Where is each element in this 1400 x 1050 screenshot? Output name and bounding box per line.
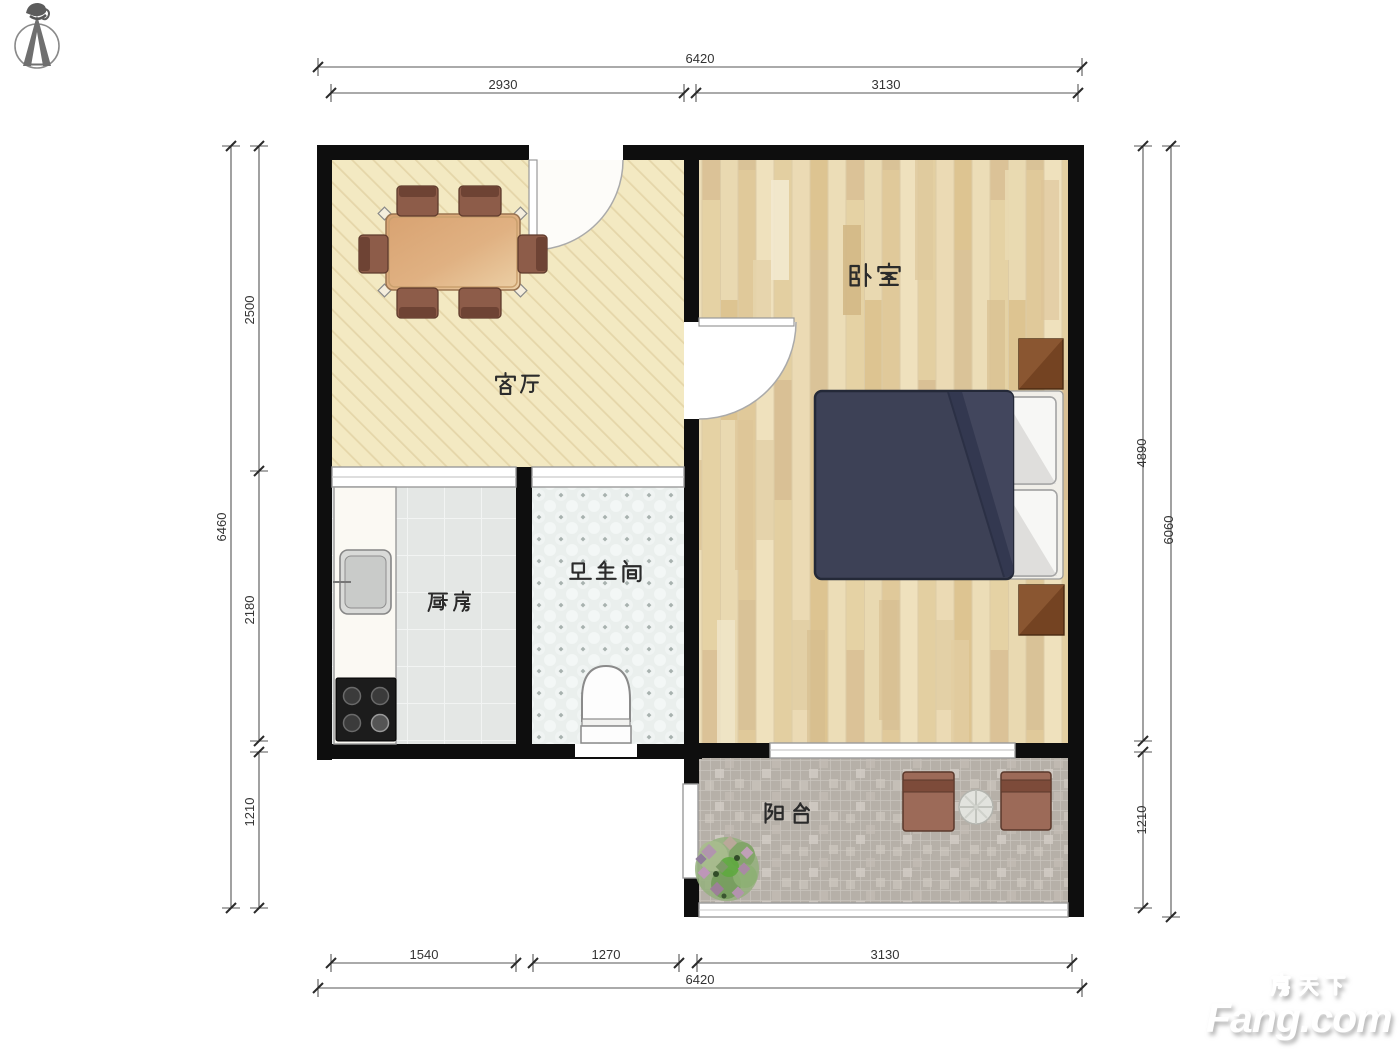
svg-text:4890: 4890 [1134, 439, 1149, 468]
svg-text:1270: 1270 [592, 947, 621, 962]
svg-text:Fang.com: Fang.com [1206, 995, 1392, 1041]
svg-text:1210: 1210 [242, 798, 257, 827]
svg-text:1540: 1540 [410, 947, 439, 962]
svg-text:6060: 6060 [1161, 516, 1176, 545]
svg-text:2500: 2500 [242, 296, 257, 325]
svg-text:6460: 6460 [214, 513, 229, 542]
svg-text:3130: 3130 [872, 77, 901, 92]
svg-text:2180: 2180 [242, 596, 257, 625]
svg-text:3130: 3130 [871, 947, 900, 962]
svg-text:6420: 6420 [686, 51, 715, 66]
svg-text:2930: 2930 [489, 77, 518, 92]
svg-text:6420: 6420 [686, 972, 715, 987]
svg-text:1210: 1210 [1134, 806, 1149, 835]
